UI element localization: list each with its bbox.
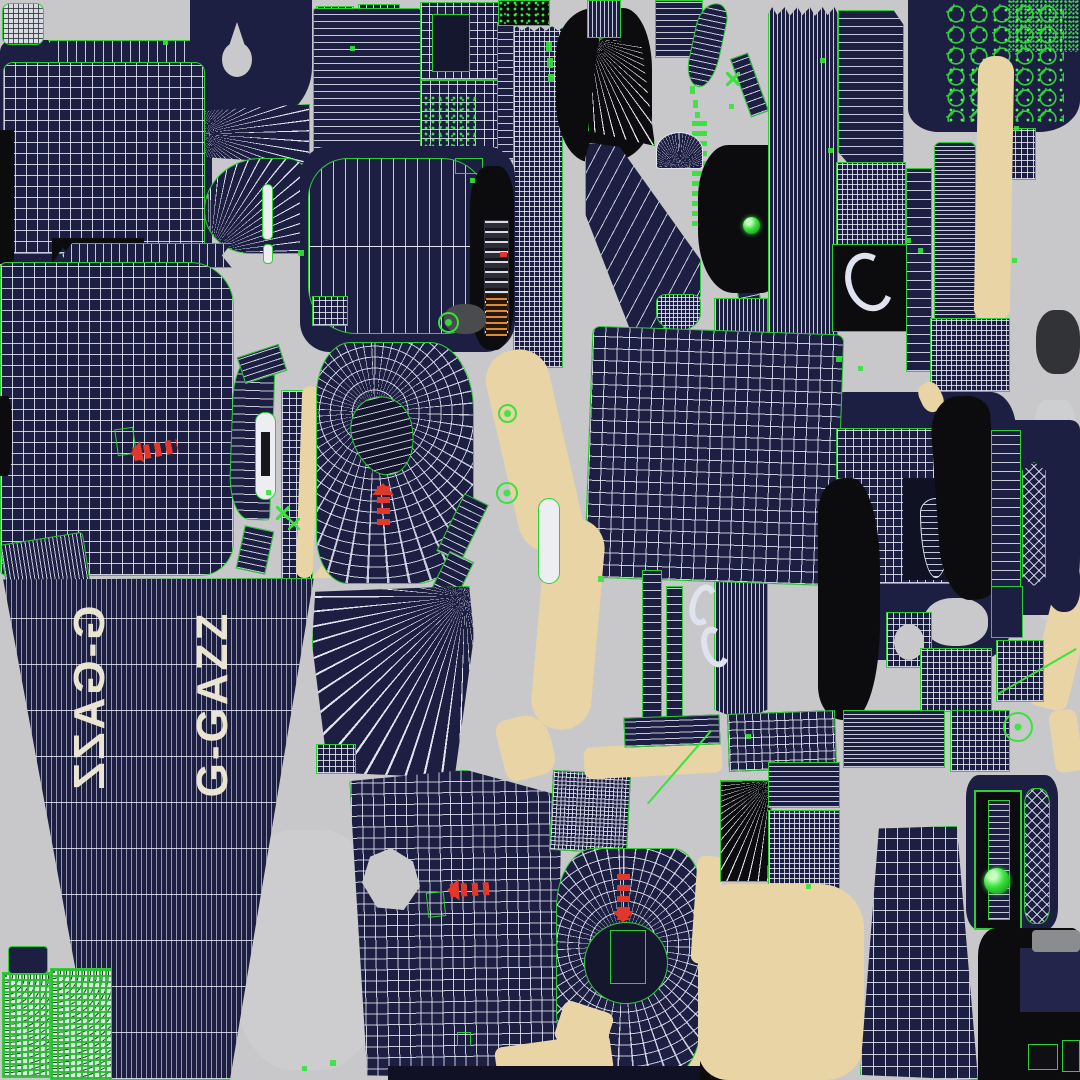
hole-rect-green [610,930,646,984]
navy-strip-h [624,714,721,747]
white-pill-b [263,244,273,264]
bit [828,148,833,153]
bit [330,1060,336,1066]
bit [350,46,355,51]
dark-blob-tr [1036,310,1080,374]
seam-sq-c [457,1032,471,1046]
cells-block-a [836,162,906,246]
bit [918,248,923,253]
x-mark-c [726,72,740,86]
bit [906,238,911,243]
big-trap-br [860,826,978,1080]
bit [1012,258,1017,263]
ladder-col-b [991,430,1021,590]
cells-block-b [930,318,1010,392]
side-panel [0,262,234,576]
ladder-narrow [497,22,514,160]
window-rect [991,586,1023,638]
hl-block-br [768,762,840,808]
green-rect-b [1062,1040,1080,1072]
green-ball [984,868,1010,894]
bit [546,42,552,52]
panel-top-left [3,62,205,254]
ladder-column [838,10,904,164]
white-capsule [538,498,560,584]
row-panel-c [950,710,1010,772]
ladder-v2 [666,586,683,718]
bit [470,178,475,183]
fan-funnel [198,104,310,164]
teardrop-hole [222,42,252,77]
gray-inlet [924,598,988,646]
left-black-strip [0,130,14,264]
gauge-orange [486,294,507,336]
red-arrow-arch [450,882,495,897]
mini-rung-b [236,525,274,574]
bit [858,366,863,371]
tan-tab-tr [1048,708,1080,773]
lattice-strip-b [1024,788,1050,924]
bit [806,884,811,889]
engine-slats [712,900,850,1066]
bit [836,356,842,362]
red-arrow-donut [377,486,390,530]
scallop-top [656,132,703,169]
black-axe [818,478,880,720]
mini-cellrect [312,296,348,326]
pill-arch-core [261,432,270,476]
bit [298,250,304,256]
ladder-v1 [642,570,662,720]
seam-quad-b [426,891,447,918]
lattice-board [1022,462,1046,586]
uv-texture-atlas: G-GAZZ G-GAZZ [0,0,1080,1080]
ball-green-a [743,217,760,234]
mini-grid-e [316,744,356,774]
mini-vl-rect [587,0,621,38]
x-mark-b [288,518,300,530]
grid-block-row-a [920,648,992,712]
blackdot-rect [498,0,550,26]
bit [693,100,698,108]
bit [729,104,734,109]
detail-patch-grid [2,3,44,45]
black-panel-br [720,780,772,882]
bit [1014,126,1019,131]
ring-c [496,482,518,504]
bit [547,58,553,68]
black-nub-left [0,396,12,476]
red-arrow-donut-b [617,874,630,920]
arrowhead [446,879,459,902]
bit [266,490,271,495]
green-hub [1003,712,1033,742]
bit [163,40,168,45]
navy-corner-blob [1046,562,1080,612]
navy-box-br [1020,948,1080,1012]
gray-cap [1032,930,1080,952]
arrowhead [612,911,634,923]
checker-block-b [50,968,112,1080]
fan-arc [204,158,308,254]
dense-block-c [549,770,631,854]
white-pill-a [262,184,273,240]
cells-block-br [768,810,840,890]
frame-hole [432,14,470,72]
mini-rung-a [237,344,287,384]
brand-text-left: G-GAZZ [68,584,112,814]
arrowhead [372,483,394,495]
green-rect-a [1028,1044,1058,1070]
bit [302,1066,307,1071]
checker-block-a [2,972,50,1078]
bit [548,74,554,82]
ring-a [438,312,459,333]
big-grid-panel [584,326,845,587]
bottom-bar [388,1066,702,1080]
row-panel-b [843,710,945,768]
thin-ladder [906,168,932,372]
navy-tab [8,946,48,974]
bit [598,576,604,582]
green-box-ladder [988,800,1010,920]
tan-band-tr [974,56,1015,321]
bit [690,86,695,94]
hline-panel [313,8,421,156]
brand-text-right: G-GAZZ [191,589,235,819]
ring-b [498,404,517,423]
bit [820,58,825,63]
gauge-red-led [500,252,507,257]
bit [746,734,751,739]
speckle-cluster [424,96,476,152]
bit [695,112,700,118]
dome-basket [656,294,701,331]
